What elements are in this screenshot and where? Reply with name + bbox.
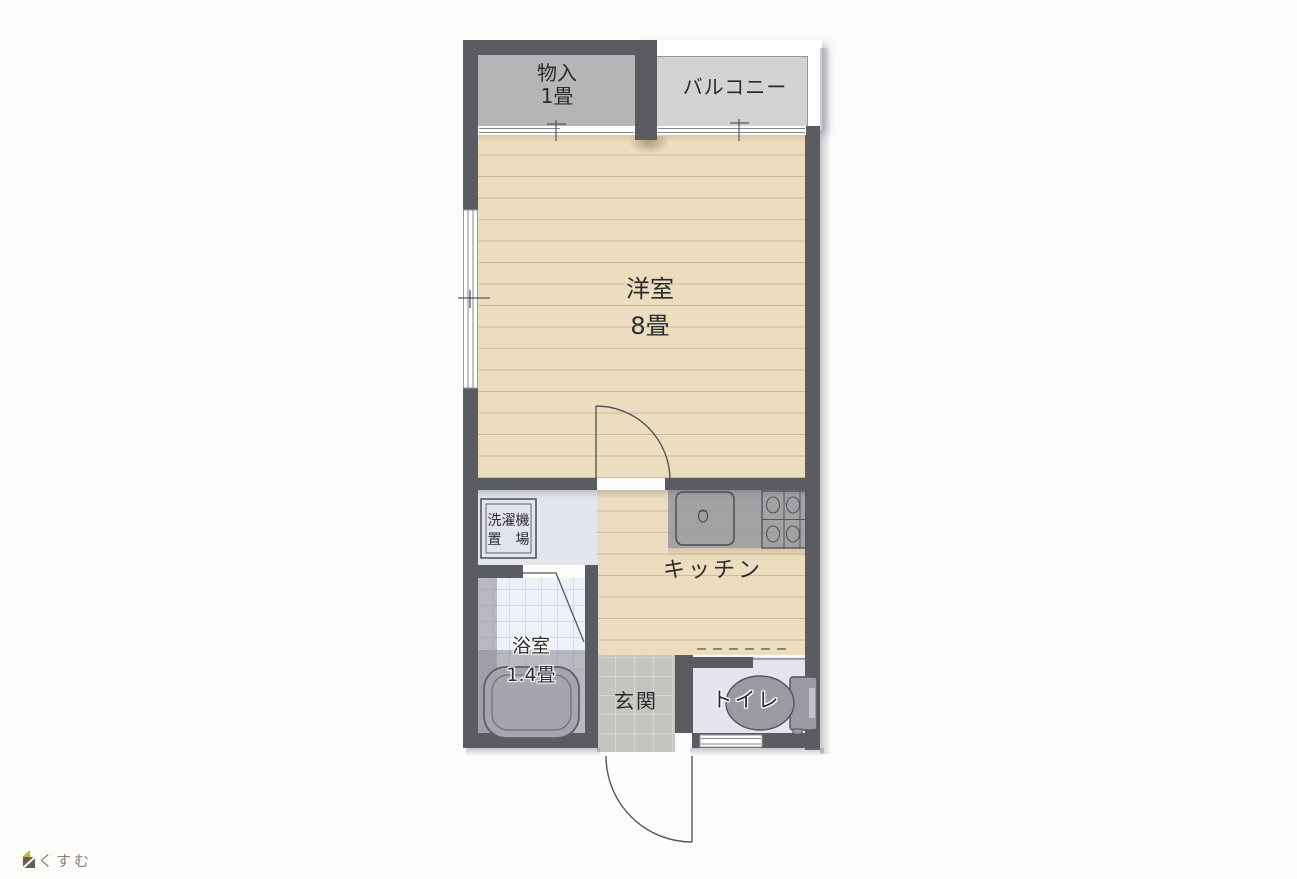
toilet-door-dashed: [697, 649, 805, 659]
floor-plan: 物入 1畳 バルコニー 洋室 8畳 キッチン 洗濯機 置 場 浴室 1.4畳 玄…: [0, 0, 1297, 879]
kitchen-sink-icon: [676, 492, 734, 545]
window-symbol-toilet: [700, 735, 762, 747]
door-arc-entrance: [606, 756, 692, 842]
logo-house-icon: [20, 850, 38, 868]
logo: らくすむ: [20, 850, 92, 871]
window-symbol-left: [458, 210, 490, 388]
door-arc-western-room: [596, 406, 670, 480]
sliding-door-closet: [478, 120, 635, 141]
label-closet: 物入 1畳: [477, 62, 637, 108]
label-bathroom: 浴室 1.4畳: [481, 632, 581, 689]
label-balcony: バルコニー: [655, 76, 815, 99]
label-laundry: 洗濯機 置 場: [481, 512, 536, 550]
sliding-window-balcony: [657, 119, 806, 141]
plan-symbols: [0, 0, 1297, 879]
stove-icon: [762, 491, 806, 548]
label-kitchen: キッチン: [613, 558, 813, 583]
label-entrance: 玄関: [596, 690, 676, 713]
label-toilet: トイレ: [696, 688, 796, 712]
label-western-room: 洋室 8畳: [540, 271, 760, 345]
